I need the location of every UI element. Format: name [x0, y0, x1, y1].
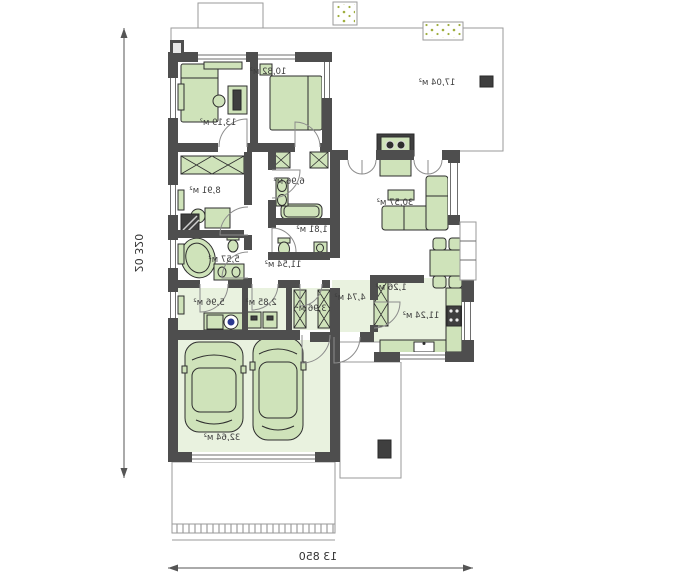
window-bedroom-terrace: [322, 62, 332, 98]
wall-corridor-right: [268, 152, 276, 170]
label-bathroom-small: 6,96 м²: [273, 177, 304, 187]
label-pantry: 1,26 м²: [375, 283, 406, 293]
terrace-french-door-2: [362, 160, 376, 174]
stove: [447, 306, 461, 326]
terrace-french-door-3: [414, 160, 428, 174]
garage-door: [192, 452, 315, 462]
window-left-2: [168, 185, 184, 215]
label-bedroom-1: 10,82 м²: [250, 67, 287, 77]
window-kitchen-right: [462, 302, 474, 340]
terrace-french-door-1: [348, 160, 362, 174]
wall-kitchen-top: [378, 275, 424, 283]
label-laundry: 5,96 м²: [193, 298, 224, 308]
label-kitchen: 11,24 м²: [403, 311, 440, 321]
terrace-vent: [480, 76, 493, 87]
terrace-items: [333, 2, 493, 87]
window-left-3: [168, 240, 184, 268]
window-top-2: [258, 52, 295, 62]
wall-garage-top: [168, 330, 300, 340]
utility-box: [378, 440, 391, 458]
window-kitchen-bottom: [400, 352, 445, 362]
wall-kitchen-right: [462, 278, 474, 302]
dining-table: [430, 250, 463, 276]
label-terrace: 17,04 м²: [419, 78, 456, 88]
wall-top: [168, 52, 332, 62]
wall-garage-right: [330, 342, 340, 462]
car-suv: [250, 338, 306, 440]
label-dimension-width: 13 850: [299, 550, 338, 563]
entrance-canopy: [198, 3, 263, 28]
dining-chair: [433, 276, 446, 288]
label-garage: 32,64 м²: [204, 433, 241, 443]
laundry-counter: [204, 313, 244, 330]
label-wardrobe: 3,96 м²: [295, 304, 326, 314]
wall-corridor-left: [244, 152, 252, 205]
walkway: [340, 362, 401, 478]
bed-single: [181, 64, 218, 122]
label-office: 8,91 м²: [189, 186, 220, 196]
floor-plan-page: 10,82 м² 13,19 м² 17,04 м² 8,91 м² 6,96 …: [0, 0, 700, 575]
wall-wc-bottom: [268, 252, 330, 260]
office-desk: [181, 208, 230, 233]
driveway-grate: [172, 524, 335, 533]
label-bedroom-2: 13,19 м²: [200, 118, 237, 128]
wall-boiler-wardrobe: [286, 288, 292, 330]
bay-window-dining: [460, 222, 476, 280]
label-dimension-depth: 20 320: [132, 234, 145, 273]
window-top-1: [198, 52, 246, 69]
wall-bedroom-terrace: [322, 52, 332, 62]
label-entry-hall: 4,74 м²: [334, 293, 365, 303]
dining-chair: [433, 238, 446, 250]
wall-bath-wc-divider: [276, 218, 330, 225]
wall-laundry-boiler: [242, 288, 248, 330]
computer-monitor: [233, 90, 241, 110]
label-corridor: 11,54 м²: [265, 260, 302, 270]
label-living-room: 30,57 м²: [377, 198, 414, 208]
driveway: [172, 462, 335, 524]
wall-kitchen-bottom: [374, 352, 400, 362]
label-boiler-room: 2,85 м²: [245, 298, 276, 308]
label-wc: 1,81 м²: [296, 225, 327, 235]
window-living-right: [448, 163, 460, 215]
terrace-french-door-4: [428, 160, 442, 174]
label-bathroom-main: 5,57 м²: [208, 255, 239, 265]
closet-x-right: [310, 152, 328, 168]
office-wardrobe: [181, 156, 244, 174]
wall-below-bedrooms: [177, 143, 218, 152]
wall-service-top: [177, 280, 200, 288]
car-sedan: [182, 342, 246, 432]
wall-office-bath: [177, 230, 244, 238]
dining-set: [430, 238, 463, 288]
floor-plan-drawing: 10,82 м² 13,19 м² 17,04 м² 8,91 м² 6,96 …: [0, 0, 700, 575]
bath-toilet: [227, 236, 239, 252]
window-left-4: [168, 292, 184, 318]
desk-chair: [213, 95, 225, 107]
wall-living-left: [330, 150, 340, 258]
